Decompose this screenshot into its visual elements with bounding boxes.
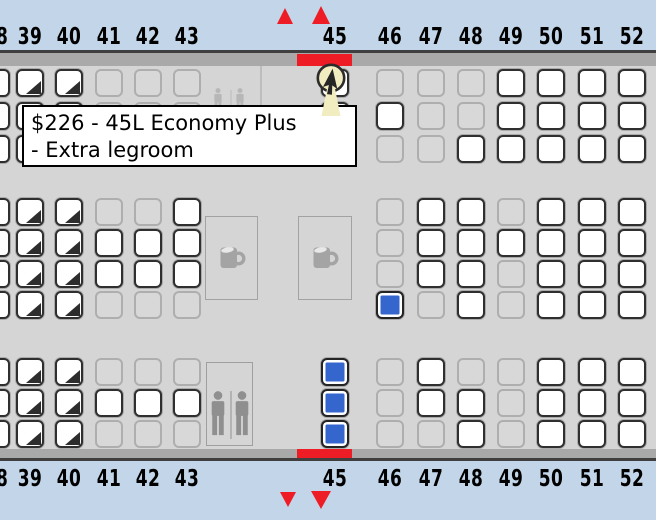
row-axis-bottom: 3839404142434546474849505152	[0, 469, 656, 491]
exit-marker-triangle-up	[277, 8, 293, 24]
seat-38-middle-1[interactable]	[0, 198, 10, 226]
seat-40-top-1[interactable]	[55, 69, 83, 97]
seat-43-middle-1[interactable]	[173, 198, 201, 226]
row-number-49: 49	[496, 27, 526, 47]
seat-41-middle-3[interactable]	[95, 260, 123, 288]
seat-41-bottom-2[interactable]	[95, 389, 123, 417]
seat-39-bottom-1[interactable]	[16, 358, 44, 386]
seat-47-bottom-2[interactable]	[417, 389, 445, 417]
seat-47-middle-3[interactable]	[417, 260, 445, 288]
row-number-38: 38	[0, 27, 11, 47]
row-number-45: 45	[320, 27, 350, 47]
seat-49-bottom-2	[497, 389, 525, 417]
seat-43-middle-2[interactable]	[173, 229, 201, 257]
row-number-48: 48	[456, 27, 486, 47]
row-number-51: 51	[577, 27, 607, 47]
lavatory-divider	[230, 391, 232, 439]
seat-41-middle-4	[95, 291, 123, 319]
row-number-47: 47	[416, 469, 446, 489]
seat-49-middle-2[interactable]	[497, 229, 525, 257]
seat-51-top-1[interactable]	[578, 69, 606, 97]
seat-46-bottom-2	[376, 389, 404, 417]
seat-40-middle-1[interactable]	[55, 198, 83, 226]
seat-52-bottom-3[interactable]	[618, 420, 646, 448]
exit-marker-triangle-down	[311, 491, 331, 509]
row-number-40: 40	[54, 469, 84, 489]
row-number-52: 52	[617, 27, 647, 47]
seat-51-top-2[interactable]	[578, 102, 606, 130]
row-number-41: 41	[94, 27, 124, 47]
seat-47-top-3	[417, 135, 445, 163]
seat-46-bottom-1	[376, 358, 404, 386]
seat-48-bottom-1	[457, 358, 485, 386]
seat-42-middle-3[interactable]	[134, 260, 162, 288]
seat-49-middle-3	[497, 260, 525, 288]
seat-41-bottom-3	[95, 420, 123, 448]
seat-52-top-1[interactable]	[618, 69, 646, 97]
galley-box-2	[298, 216, 352, 300]
seat-map-screen: 3839404142434546474849505152 38394041424…	[0, 0, 656, 520]
seat-48-top-1	[457, 69, 485, 97]
seat-38-bottom-1[interactable]	[0, 358, 10, 386]
seat-46-bottom-3	[376, 420, 404, 448]
cursor-icon	[312, 60, 350, 118]
cabin-wall-line-bottom	[0, 458, 656, 461]
seat-39-middle-2[interactable]	[16, 229, 44, 257]
seat-51-bottom-2[interactable]	[578, 389, 606, 417]
lavatory-person-2	[233, 391, 251, 440]
seat-46-top-2[interactable]	[376, 102, 404, 130]
row-number-40: 40	[54, 27, 84, 47]
row-number-47: 47	[416, 27, 446, 47]
seat-52-middle-1[interactable]	[618, 198, 646, 226]
seat-52-top-2[interactable]	[618, 102, 646, 130]
seat-50-bottom-3[interactable]	[537, 420, 565, 448]
seat-46-top-3	[376, 135, 404, 163]
lavatory-box	[206, 362, 253, 446]
person-icon	[209, 391, 227, 436]
exit-marker-triangle-down	[280, 492, 296, 507]
row-number-51: 51	[577, 469, 607, 489]
seat-46-middle-2	[376, 229, 404, 257]
seat-50-bottom-1[interactable]	[537, 358, 565, 386]
seat-41-middle-2[interactable]	[95, 229, 123, 257]
seat-48-bottom-2[interactable]	[457, 389, 485, 417]
seat-43-bottom-1	[173, 358, 201, 386]
seat-40-middle-2[interactable]	[55, 229, 83, 257]
seat-38-top-1[interactable]	[0, 69, 10, 97]
seat-49-top-2[interactable]	[497, 102, 525, 130]
seat-50-middle-2[interactable]	[537, 229, 565, 257]
seat-40-middle-4[interactable]	[55, 291, 83, 319]
seat-42-bottom-1	[134, 358, 162, 386]
seat-52-middle-3[interactable]	[618, 260, 646, 288]
seat-43-top-1	[173, 69, 201, 97]
seat-39-bottom-2[interactable]	[16, 389, 44, 417]
seat-52-middle-2[interactable]	[618, 229, 646, 257]
person-icon	[233, 391, 251, 436]
row-number-43: 43	[172, 469, 202, 489]
exit-marker-triangle-up	[312, 6, 330, 24]
row-number-46: 46	[375, 27, 405, 47]
tooltip-line2: - Extra legroom	[31, 137, 355, 164]
exit-row-highlight-bottom	[297, 449, 352, 458]
seat-39-top-1[interactable]	[16, 69, 44, 97]
seat-45-bottom-2[interactable]	[321, 389, 349, 417]
row-number-42: 42	[133, 469, 163, 489]
row-number-48: 48	[456, 469, 486, 489]
row-number-46: 46	[375, 469, 405, 489]
seat-47-middle-4	[417, 291, 445, 319]
seat-43-middle-3[interactable]	[173, 260, 201, 288]
seat-51-top-3[interactable]	[578, 135, 606, 163]
row-number-50: 50	[536, 469, 566, 489]
seat-52-bottom-2[interactable]	[618, 389, 646, 417]
seat-40-middle-3[interactable]	[55, 260, 83, 288]
seat-45-bottom-1[interactable]	[321, 358, 349, 386]
row-number-49: 49	[496, 469, 526, 489]
seat-39-middle-4[interactable]	[16, 291, 44, 319]
seat-50-middle-4[interactable]	[537, 291, 565, 319]
row-number-42: 42	[133, 27, 163, 47]
seat-39-bottom-3[interactable]	[16, 420, 44, 448]
seat-50-middle-1[interactable]	[537, 198, 565, 226]
seat-45-bottom-3[interactable]	[321, 420, 349, 448]
seat-51-middle-4[interactable]	[578, 291, 606, 319]
row-number-45: 45	[320, 469, 350, 489]
seat-42-middle-2[interactable]	[134, 229, 162, 257]
seat-48-middle-4[interactable]	[457, 291, 485, 319]
seat-41-middle-1	[95, 198, 123, 226]
seat-48-middle-3[interactable]	[457, 260, 485, 288]
seat-52-bottom-1[interactable]	[618, 358, 646, 386]
seat-50-top-2[interactable]	[537, 102, 565, 130]
seat-52-top-3[interactable]	[618, 135, 646, 163]
seat-46-middle-3	[376, 260, 404, 288]
seat-43-middle-4	[173, 291, 201, 319]
seat-42-middle-1	[134, 198, 162, 226]
seat-50-top-3[interactable]	[537, 135, 565, 163]
seat-38-top-2[interactable]	[0, 102, 10, 130]
seat-51-middle-3[interactable]	[578, 260, 606, 288]
seat-46-middle-1	[376, 198, 404, 226]
seat-47-top-1	[417, 69, 445, 97]
seat-38-bottom-3[interactable]	[0, 420, 10, 448]
seat-47-top-2	[417, 102, 445, 130]
seat-tooltip: $226 - 45L Economy Plus - Extra legroom	[22, 105, 357, 167]
seat-46-middle-4[interactable]	[376, 291, 404, 319]
seat-39-middle-3[interactable]	[16, 260, 44, 288]
seat-50-middle-3[interactable]	[537, 260, 565, 288]
seat-49-bottom-3	[497, 420, 525, 448]
seat-49-top-3[interactable]	[497, 135, 525, 163]
tooltip-line1: $226 - 45L Economy Plus	[31, 110, 355, 137]
seat-49-middle-4	[497, 291, 525, 319]
seat-41-top-1	[95, 69, 123, 97]
seat-40-bottom-2[interactable]	[55, 389, 83, 417]
seat-38-middle-2[interactable]	[0, 229, 10, 257]
row-number-38: 38	[0, 469, 11, 489]
seat-38-middle-3[interactable]	[0, 260, 10, 288]
seat-41-bottom-1	[95, 358, 123, 386]
seat-48-middle-1[interactable]	[457, 198, 485, 226]
seat-42-middle-4	[134, 291, 162, 319]
seat-50-top-1[interactable]	[537, 69, 565, 97]
row-axis-top: 3839404142434546474849505152	[0, 27, 656, 49]
seat-42-bottom-2[interactable]	[134, 389, 162, 417]
seat-46-top-1	[376, 69, 404, 97]
seat-39-middle-1[interactable]	[16, 198, 44, 226]
row-number-41: 41	[94, 469, 124, 489]
seat-40-bottom-1[interactable]	[55, 358, 83, 386]
row-number-39: 39	[15, 27, 45, 47]
seat-51-bottom-1[interactable]	[578, 358, 606, 386]
seat-49-bottom-1	[497, 358, 525, 386]
galley-box-1	[205, 216, 258, 300]
row-number-39: 39	[15, 469, 45, 489]
seat-48-top-3[interactable]	[457, 135, 485, 163]
seat-42-bottom-3	[134, 420, 162, 448]
lavatory-person-1	[209, 391, 227, 440]
seat-38-bottom-2[interactable]	[0, 389, 10, 417]
seat-49-middle-1	[497, 198, 525, 226]
seat-38-middle-4[interactable]	[0, 291, 10, 319]
seat-42-top-1	[134, 69, 162, 97]
row-number-50: 50	[536, 27, 566, 47]
seat-51-middle-1[interactable]	[578, 198, 606, 226]
row-number-52: 52	[617, 469, 647, 489]
seat-47-bottom-1[interactable]	[417, 358, 445, 386]
row-number-43: 43	[172, 27, 202, 47]
seat-40-bottom-3[interactable]	[55, 420, 83, 448]
cabin-wall-divider	[260, 66, 262, 107]
seat-48-middle-2[interactable]	[457, 229, 485, 257]
galley-mug-icon	[217, 243, 247, 273]
seat-47-middle-2[interactable]	[417, 229, 445, 257]
seat-47-bottom-3	[417, 420, 445, 448]
seat-43-bottom-3	[173, 420, 201, 448]
seat-50-bottom-2[interactable]	[537, 389, 565, 417]
seat-43-bottom-2[interactable]	[173, 389, 201, 417]
seat-51-bottom-3[interactable]	[578, 420, 606, 448]
seat-49-top-1[interactable]	[497, 69, 525, 97]
seat-48-bottom-3[interactable]	[457, 420, 485, 448]
seat-52-middle-4[interactable]	[618, 291, 646, 319]
seat-38-top-3[interactable]	[0, 135, 10, 163]
seat-47-middle-1[interactable]	[417, 198, 445, 226]
seat-48-top-2	[457, 102, 485, 130]
seat-51-middle-2[interactable]	[578, 229, 606, 257]
galley-mug-icon	[310, 243, 340, 273]
